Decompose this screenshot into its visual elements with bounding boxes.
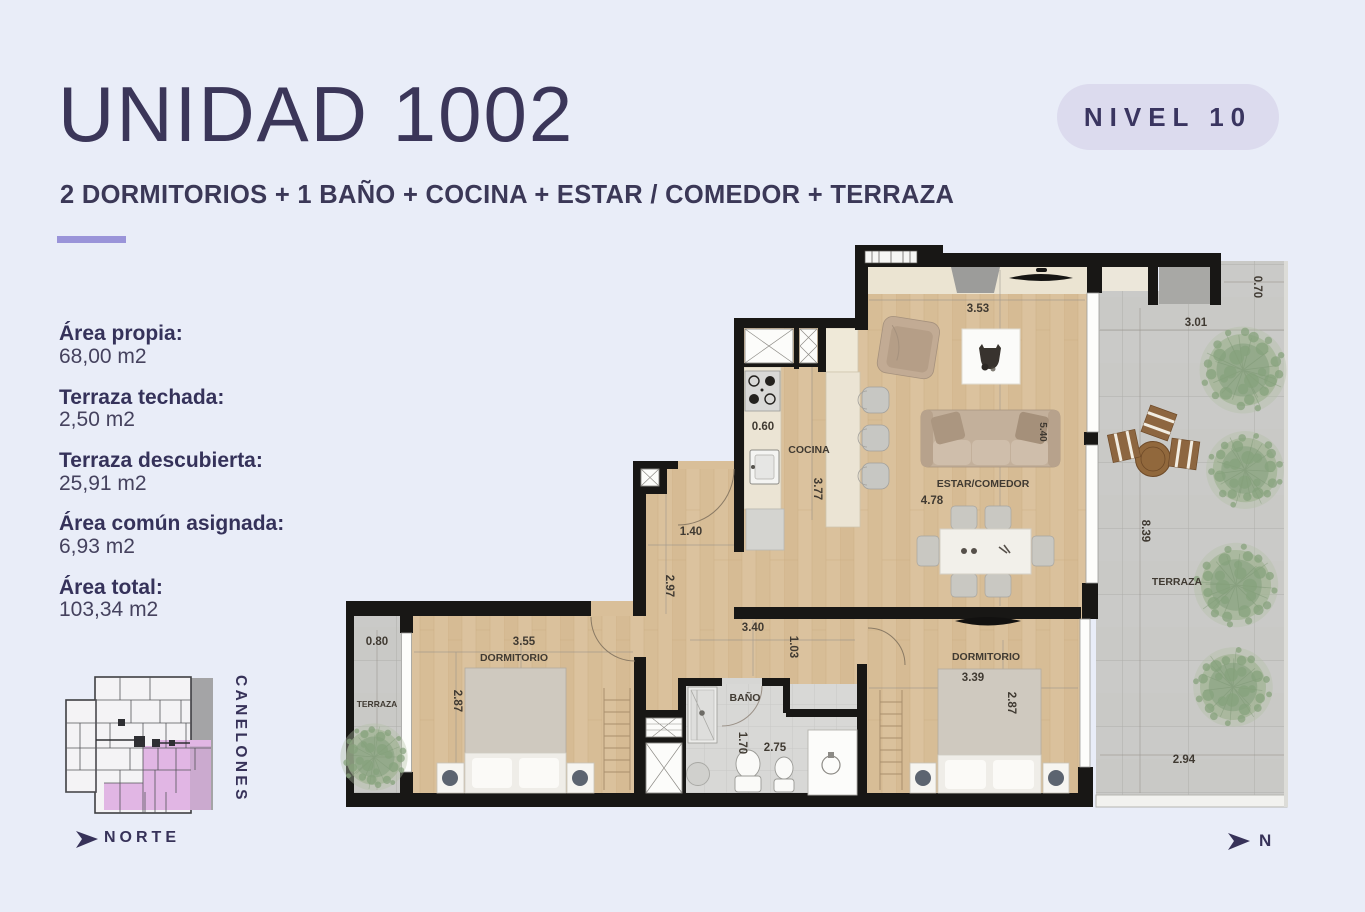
svg-text:3.01: 3.01	[1185, 317, 1208, 329]
svg-text:3.55: 3.55	[513, 636, 536, 648]
svg-text:8.39: 8.39	[1139, 520, 1151, 542]
svg-text:1.40: 1.40	[680, 526, 702, 538]
svg-text:CANELONES: CANELONES	[232, 675, 249, 803]
svg-text:3.40: 3.40	[742, 622, 764, 634]
svg-text:3.77: 3.77	[811, 478, 823, 500]
svg-text:0.60: 0.60	[752, 421, 774, 433]
svg-text:2.87: 2.87	[1005, 692, 1017, 714]
svg-text:1.70: 1.70	[736, 732, 748, 754]
svg-text:1.03: 1.03	[787, 636, 799, 658]
svg-text:ESTAR/COMEDOR: ESTAR/COMEDOR	[937, 478, 1030, 490]
svg-text:DORMITORIO: DORMITORIO	[480, 652, 548, 664]
svg-text:2.94: 2.94	[1173, 754, 1196, 766]
svg-text:TERRAZA: TERRAZA	[1152, 576, 1203, 588]
svg-text:0.70: 0.70	[1251, 276, 1263, 298]
svg-text:COCINA: COCINA	[788, 444, 830, 456]
svg-text:2.87: 2.87	[451, 690, 463, 712]
svg-text:5.40: 5.40	[1037, 422, 1048, 442]
svg-text:4.78: 4.78	[921, 495, 944, 507]
svg-text:0.80: 0.80	[366, 636, 388, 648]
svg-text:DORMITORIO: DORMITORIO	[952, 651, 1020, 663]
svg-text:2.75: 2.75	[764, 742, 787, 754]
svg-text:BAÑO: BAÑO	[730, 691, 761, 704]
svg-text:TERRAZA: TERRAZA	[357, 699, 398, 709]
svg-text:3.39: 3.39	[962, 672, 984, 684]
svg-text:3.53: 3.53	[967, 303, 989, 315]
svg-text:2.97: 2.97	[663, 575, 675, 597]
